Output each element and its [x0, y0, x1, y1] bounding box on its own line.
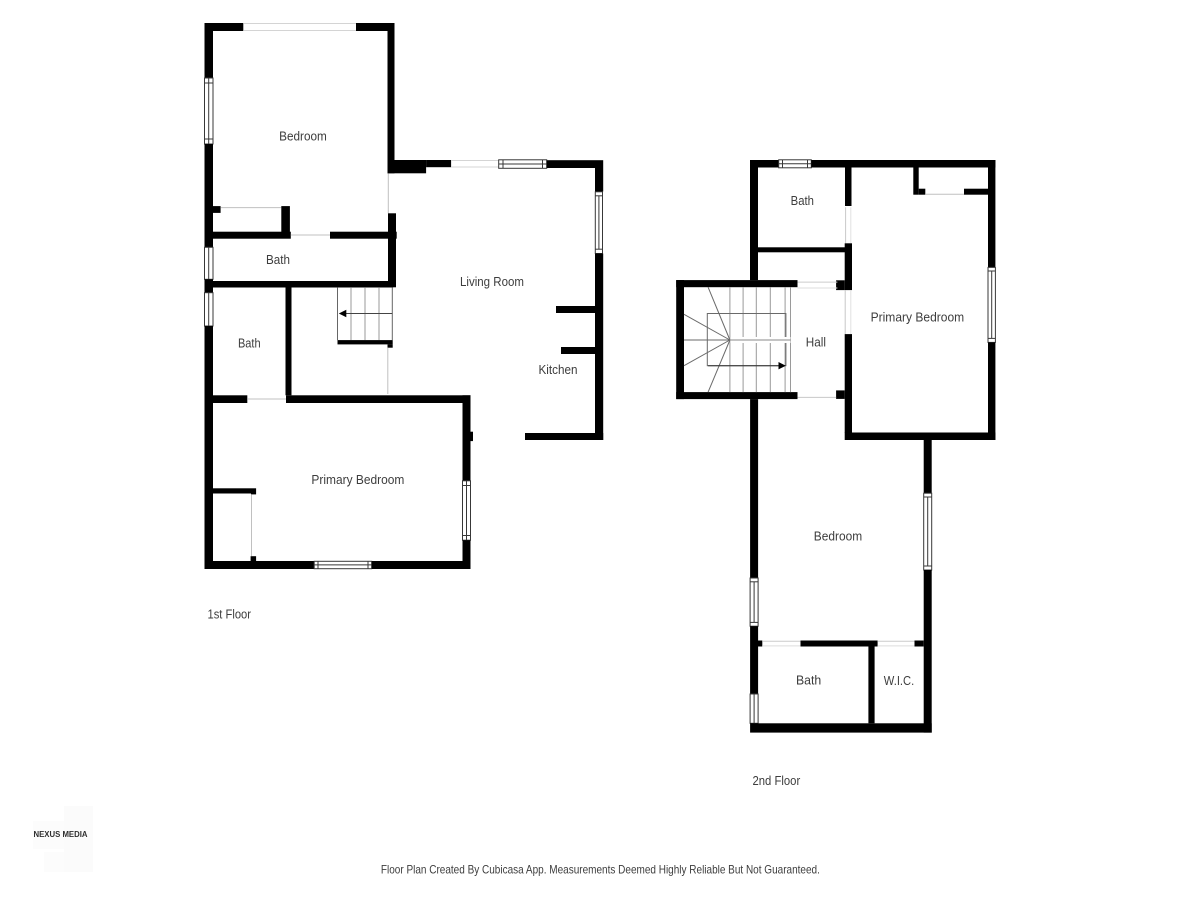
- svg-text:Hall: Hall: [806, 334, 826, 349]
- svg-text:Bedroom: Bedroom: [814, 529, 862, 544]
- svg-text:Primary Bedroom: Primary Bedroom: [311, 472, 404, 487]
- svg-text:Bath: Bath: [238, 335, 261, 350]
- svg-text:Bedroom: Bedroom: [279, 129, 327, 144]
- svg-text:Bath: Bath: [266, 252, 290, 267]
- svg-text:Primary Bedroom: Primary Bedroom: [871, 310, 965, 325]
- svg-text:W.I.C.: W.I.C.: [884, 673, 914, 688]
- svg-text:Bath: Bath: [796, 673, 821, 688]
- svg-text:NEXUS MEDIA: NEXUS MEDIA: [34, 829, 88, 839]
- svg-text:1st Floor: 1st Floor: [208, 607, 252, 622]
- svg-text:Living Room: Living Room: [460, 274, 524, 289]
- svg-text:Bath: Bath: [791, 193, 814, 208]
- svg-text:Kitchen: Kitchen: [539, 362, 578, 377]
- svg-text:Floor Plan Created By Cubicasa: Floor Plan Created By Cubicasa App. Meas…: [381, 862, 820, 876]
- svg-text:2nd Floor: 2nd Floor: [753, 773, 801, 788]
